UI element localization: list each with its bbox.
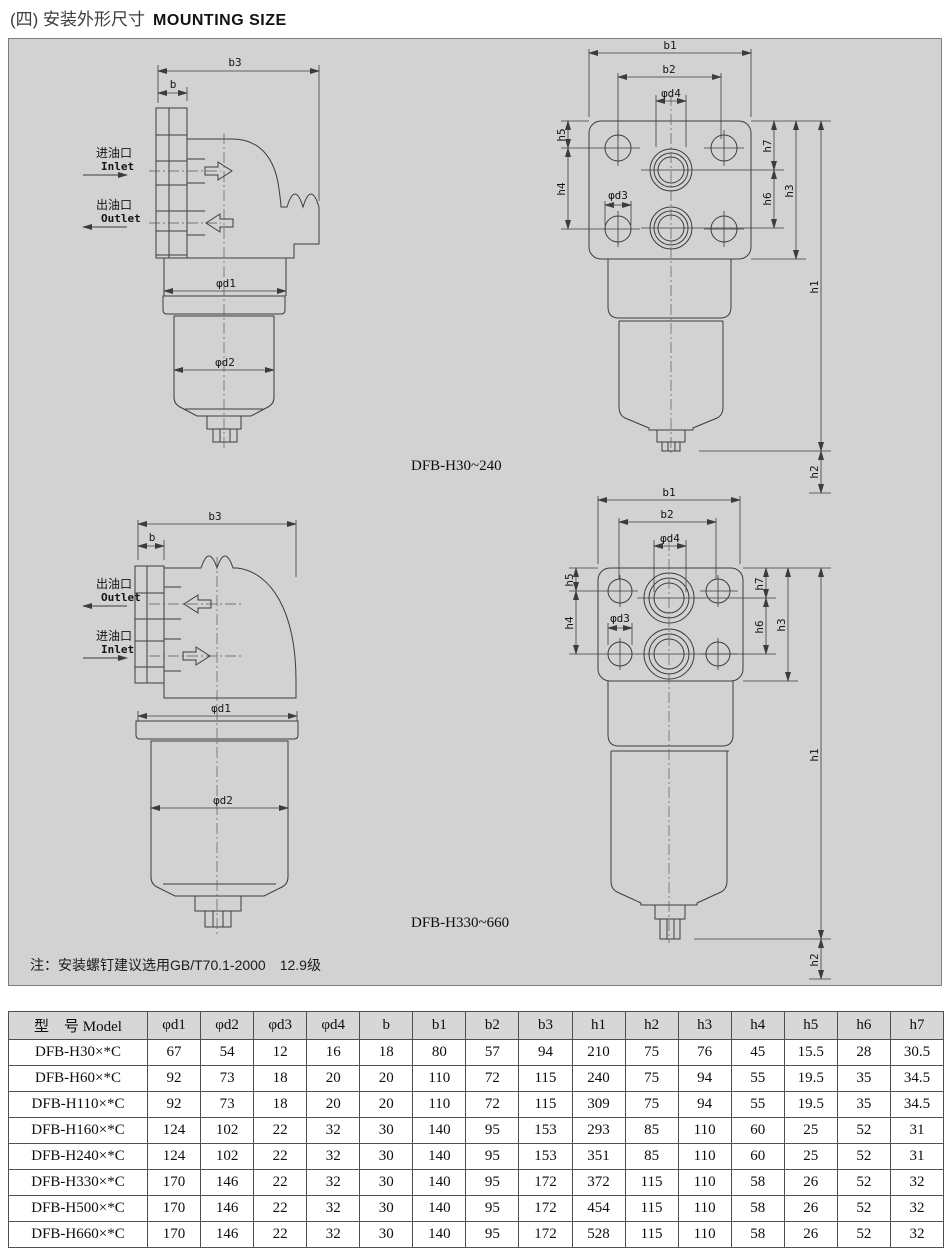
inlet-label-zh: 进油口 [96,629,132,643]
value-cell: 18 [254,1092,307,1118]
model-cell: DFB-H60×*C [9,1066,148,1092]
value-cell: 52 [837,1222,890,1248]
column-header: φd3 [254,1012,307,1040]
column-header: b2 [466,1012,519,1040]
value-cell: 309 [572,1092,625,1118]
value-cell: 30 [360,1118,413,1144]
dim-label-h2: h2 [808,953,821,966]
value-cell: 85 [625,1118,678,1144]
dim-label-h5: h5 [563,573,576,586]
outlet-label-en: Outlet [101,212,141,225]
flange [135,566,164,683]
dim-label-d3: φd3 [608,189,628,202]
value-cell: 52 [837,1144,890,1170]
dim-label-h7: h7 [761,139,774,152]
value-cell: 351 [572,1144,625,1170]
value-cell: 170 [148,1222,201,1248]
inlet-label-en: Inlet [101,160,134,173]
value-cell: 30.5 [890,1040,943,1066]
value-cell: 58 [731,1170,784,1196]
value-cell: 95 [466,1144,519,1170]
value-cell: 55 [731,1092,784,1118]
value-cell: 94 [519,1040,572,1066]
value-cell: 110 [678,1196,731,1222]
value-cell: 210 [572,1040,625,1066]
dim-label-h2: h2 [808,465,821,478]
bolt-holes [569,575,738,670]
model-range-bottom: DFB-H330~660 [411,915,509,931]
value-cell: 170 [148,1170,201,1196]
value-cell: 146 [201,1222,254,1248]
column-header: φd2 [201,1012,254,1040]
table-row: DFB-H240×*C12410222323014095153351851106… [9,1144,944,1170]
value-cell: 22 [254,1170,307,1196]
value-cell: 32 [890,1222,943,1248]
front-view-top: b1 b2 φd4 φd3 h5 h4 h7 h6 h3 [555,39,831,493]
value-cell: 95 [466,1196,519,1222]
value-cell: 454 [572,1196,625,1222]
dim-label-h4: h4 [563,616,576,630]
value-cell: 19.5 [784,1092,837,1118]
dim-label-h4: h4 [555,182,568,196]
mounting-drawings: b3 b 进油口 Inlet 出油口 Outlet [9,39,943,987]
value-cell: 19.5 [784,1066,837,1092]
value-cell: 34.5 [890,1066,943,1092]
value-cell: 32 [307,1118,360,1144]
value-cell: 45 [731,1040,784,1066]
value-cell: 110 [678,1118,731,1144]
value-cell: 30 [360,1196,413,1222]
value-cell: 58 [731,1222,784,1248]
model-cell: DFB-H110×*C [9,1092,148,1118]
dim-label-h5: h5 [555,128,568,141]
value-cell: 52 [837,1196,890,1222]
value-cell: 240 [572,1066,625,1092]
side-view-bottom: b3 b 出油口 Outlet 进油口 Inlet φd1 [83,510,298,937]
dim-label-h3: h3 [775,618,788,631]
filter-bowl [151,741,288,927]
table-row: DFB-H500×*C17014622323014095172454115110… [9,1196,944,1222]
value-cell: 20 [360,1066,413,1092]
value-cell: 60 [731,1144,784,1170]
table-row: DFB-H160×*C12410222323014095153293851106… [9,1118,944,1144]
value-cell: 115 [519,1092,572,1118]
value-cell: 34.5 [890,1092,943,1118]
value-cell: 172 [519,1170,572,1196]
value-cell: 80 [413,1040,466,1066]
dim-label-b2: b2 [662,63,675,76]
outlet-label-zh: 出油口 [96,198,132,212]
table-row: DFB-H660×*C17014622323014095172528115110… [9,1222,944,1248]
dim-label-d4: φd4 [660,532,680,545]
value-cell: 110 [678,1144,731,1170]
value-cell: 75 [625,1040,678,1066]
value-cell: 140 [413,1144,466,1170]
value-cell: 32 [307,1170,360,1196]
value-cell: 18 [254,1066,307,1092]
value-cell: 140 [413,1170,466,1196]
model-cell: DFB-H240×*C [9,1144,148,1170]
dim-label-d1: φd1 [216,277,236,290]
filter-body-front [608,681,733,939]
dim-label-d3: φd3 [610,612,630,625]
model-cell: DFB-H30×*C [9,1040,148,1066]
value-cell: 92 [148,1092,201,1118]
value-cell: 57 [466,1040,519,1066]
value-cell: 31 [890,1144,943,1170]
value-cell: 22 [254,1144,307,1170]
value-cell: 15.5 [784,1040,837,1066]
drawing-panel: b3 b 进油口 Inlet 出油口 Outlet [8,38,942,986]
value-cell: 124 [148,1144,201,1170]
dim-label-h1: h1 [808,748,821,761]
value-cell: 110 [413,1092,466,1118]
table-row: DFB-H110×*C92731820201107211530975945519… [9,1092,944,1118]
value-cell: 124 [148,1118,201,1144]
value-cell: 85 [625,1144,678,1170]
value-cell: 146 [201,1196,254,1222]
value-cell: 172 [519,1222,572,1248]
column-header: 型 号 Model [9,1012,148,1040]
table-row: DFB-H30×*C675412161880579421075764515.52… [9,1040,944,1066]
table-header-row: 型 号 Modelφd1φd2φd3φd4bb1b2b3h1h2h3h4h5h6… [9,1012,944,1040]
value-cell: 30 [360,1144,413,1170]
dimension-table-wrap: 型 号 Modelφd1φd2φd3φd4bb1b2b3h1h2h3h4h5h6… [8,1011,944,1248]
value-cell: 153 [519,1144,572,1170]
value-cell: 76 [678,1040,731,1066]
value-cell: 372 [572,1170,625,1196]
value-cell: 26 [784,1170,837,1196]
outlet-label-en: Outlet [101,591,141,604]
page-title: (四) 安装外形尺寸MOUNTING SIZE [10,5,287,30]
value-cell: 32 [890,1170,943,1196]
dim-label-h3: h3 [783,184,796,197]
value-cell: 110 [413,1066,466,1092]
value-cell: 94 [678,1092,731,1118]
column-header: h6 [837,1012,890,1040]
value-cell: 58 [731,1196,784,1222]
dim-label-d1: φd1 [211,702,231,715]
column-header: φd4 [307,1012,360,1040]
value-cell: 75 [625,1066,678,1092]
dim-label-b1: b1 [662,486,675,499]
value-cell: 25 [784,1144,837,1170]
value-cell: 16 [307,1040,360,1066]
value-cell: 32 [307,1196,360,1222]
column-header: b1 [413,1012,466,1040]
value-cell: 60 [731,1118,784,1144]
value-cell: 18 [360,1040,413,1066]
dim-label-h6: h6 [761,192,774,205]
value-cell: 67 [148,1040,201,1066]
inlet-label-en: Inlet [101,643,134,656]
value-cell: 110 [678,1170,731,1196]
value-cell: 54 [201,1040,254,1066]
value-cell: 95 [466,1170,519,1196]
flange [156,108,187,258]
value-cell: 95 [466,1222,519,1248]
value-cell: 31 [890,1118,943,1144]
column-header: h7 [890,1012,943,1040]
value-cell: 110 [678,1222,731,1248]
value-cell: 172 [519,1196,572,1222]
value-cell: 26 [784,1222,837,1248]
column-header: h3 [678,1012,731,1040]
value-cell: 115 [519,1066,572,1092]
model-range-top: DFB-H30~240 [411,458,502,474]
value-cell: 32 [890,1196,943,1222]
value-cell: 22 [254,1222,307,1248]
value-cell: 35 [837,1066,890,1092]
value-cell: 153 [519,1118,572,1144]
column-header: h5 [784,1012,837,1040]
column-header: h4 [731,1012,784,1040]
model-cell: DFB-H660×*C [9,1222,148,1248]
model-cell: DFB-H500×*C [9,1196,148,1222]
model-cell: DFB-H160×*C [9,1118,148,1144]
value-cell: 20 [360,1092,413,1118]
value-cell: 20 [307,1092,360,1118]
dim-label-d2: φd2 [213,794,233,807]
bolt-holes [561,130,744,247]
page-title-en: MOUNTING SIZE [153,12,287,29]
table-body: DFB-H30×*C675412161880579421075764515.52… [9,1040,944,1248]
value-cell: 140 [413,1222,466,1248]
value-cell: 102 [201,1144,254,1170]
dim-label-b2: b2 [660,508,673,521]
outlet-label-zh: 出油口 [96,577,132,591]
front-view-bottom: b1 b2 φd4 φd3 h5 h4 h7 h6 h3 [563,486,831,979]
value-cell: 52 [837,1170,890,1196]
dim-label-h1: h1 [808,280,821,293]
value-cell: 95 [466,1118,519,1144]
dim-label-h7: h7 [753,577,766,590]
column-header: φd1 [148,1012,201,1040]
value-cell: 20 [307,1066,360,1092]
column-header: h2 [625,1012,678,1040]
table-row: DFB-H60×*C92731820201107211524075945519.… [9,1066,944,1092]
value-cell: 293 [572,1118,625,1144]
value-cell: 28 [837,1040,890,1066]
value-cell: 32 [307,1222,360,1248]
value-cell: 92 [148,1066,201,1092]
inlet-label-zh: 进油口 [96,146,132,160]
column-header: h1 [572,1012,625,1040]
page-title-zh: (四) 安装外形尺寸 [10,10,145,29]
dim-label-h6: h6 [753,620,766,633]
value-cell: 12 [254,1040,307,1066]
value-cell: 30 [360,1222,413,1248]
value-cell: 72 [466,1066,519,1092]
dim-label-b1: b1 [663,39,676,52]
side-view-top: b3 b 进油口 Inlet 出油口 Outlet [83,56,319,449]
value-cell: 22 [254,1118,307,1144]
dim-label-b: b [170,78,177,91]
value-cell: 30 [360,1170,413,1196]
column-header: b3 [519,1012,572,1040]
value-cell: 55 [731,1066,784,1092]
value-cell: 102 [201,1118,254,1144]
value-cell: 146 [201,1170,254,1196]
value-cell: 115 [625,1196,678,1222]
filter-body-front [608,259,731,451]
column-header: b [360,1012,413,1040]
filter-head-body [149,556,296,698]
value-cell: 26 [784,1196,837,1222]
value-cell: 140 [413,1118,466,1144]
filter-head-body [149,139,319,258]
value-cell: 170 [148,1196,201,1222]
value-cell: 35 [837,1092,890,1118]
model-cell: DFB-H330×*C [9,1170,148,1196]
value-cell: 94 [678,1066,731,1092]
dim-label-b: b [149,531,156,544]
value-cell: 73 [201,1092,254,1118]
value-cell: 528 [572,1222,625,1248]
value-cell: 140 [413,1196,466,1222]
value-cell: 73 [201,1066,254,1092]
mounting-screw-note: 注：安装螺钉建议选用GB/T70.1-2000 12.9级 [30,955,321,975]
table-row: DFB-H330×*C17014622323014095172372115110… [9,1170,944,1196]
value-cell: 115 [625,1222,678,1248]
value-cell: 25 [784,1118,837,1144]
value-cell: 115 [625,1170,678,1196]
value-cell: 22 [254,1196,307,1222]
value-cell: 75 [625,1092,678,1118]
dim-label-d2: φd2 [215,356,235,369]
dim-label-b3: b3 [208,510,221,523]
value-cell: 32 [307,1144,360,1170]
value-cell: 52 [837,1118,890,1144]
size-table: 型 号 Modelφd1φd2φd3φd4bb1b2b3h1h2h3h4h5h6… [8,1011,944,1248]
dim-label-b3: b3 [228,56,241,69]
value-cell: 72 [466,1092,519,1118]
